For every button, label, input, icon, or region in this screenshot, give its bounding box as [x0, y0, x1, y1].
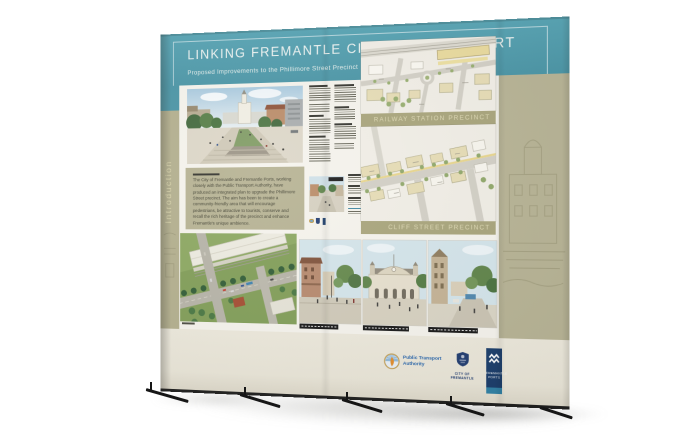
popup-display-wall: LINKING FREMANTLE CITY WITH THE PORT Pro… [160, 16, 569, 409]
mini-caption-bar [329, 177, 344, 181]
precinct-label-cliff: CLIFF STREET PRECINCT [361, 221, 496, 235]
city-logo-text: CITY OFFREMANTLE [450, 372, 475, 381]
intro-caption-bar [193, 173, 219, 175]
pta-mini-logo [309, 219, 313, 223]
stand-peg [150, 382, 152, 390]
stand-peg [346, 392, 348, 400]
aerial-view-render [180, 233, 296, 324]
body-text-column [334, 84, 356, 172]
introduction-text-block: The City of Fremantle and Fremantle Port… [186, 167, 305, 230]
artist-impression-3 [428, 240, 496, 327]
stand-peg [244, 387, 246, 395]
floor-shadow [380, 406, 610, 422]
artist-impression-station [363, 240, 426, 326]
pta-logo: Public TransportAuthority [384, 353, 442, 371]
aerial-caption-bar [182, 322, 195, 324]
heritage-building-watermark [499, 73, 570, 340]
pta-logo-text: Public TransportAuthority [403, 356, 442, 369]
cliff-street-precinct-map [361, 124, 496, 221]
city-mini-logo [316, 218, 320, 223]
right-olive-panel [499, 73, 570, 340]
studio-photo: LINKING FREMANTLE CITY WITH THE PORT Pro… [0, 0, 700, 444]
city-of-fremantle-logo: CITY OFFREMANTLE [450, 351, 475, 381]
stand-peg [450, 396, 452, 404]
pta-globe-icon [384, 353, 400, 370]
street-view-photo [186, 86, 305, 165]
wall-right-edge-shade [562, 16, 570, 409]
intro-paragraph: The City of Fremantle and Fremantle Port… [193, 176, 297, 227]
panel-crease [495, 19, 506, 406]
panel-crease [321, 27, 331, 399]
city-crest-icon [455, 351, 468, 367]
railway-station-precinct-map [361, 36, 496, 114]
wall-left-edge-shade [160, 34, 171, 392]
